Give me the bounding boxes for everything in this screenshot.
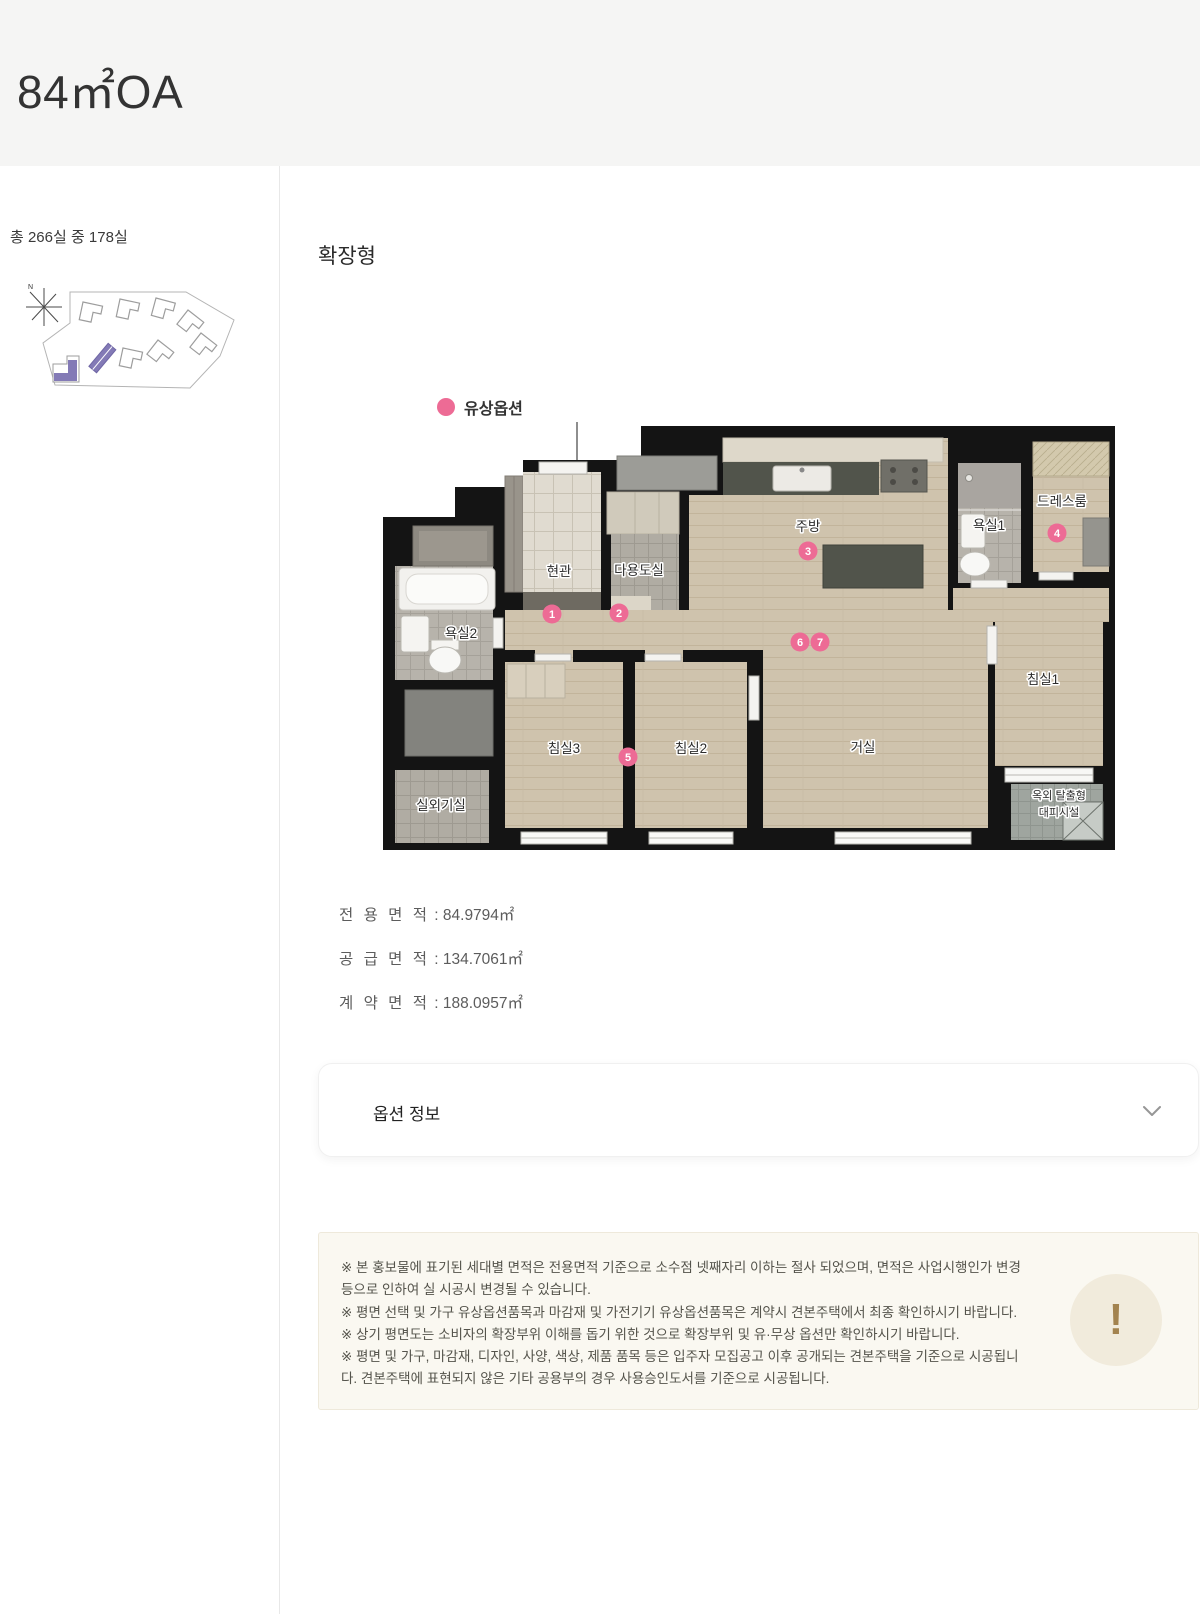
paid-option-legend: 유상옵션 xyxy=(437,395,523,419)
option-marker-1: 1 xyxy=(549,609,555,621)
room-label-outdoor-unit: 실외기실 xyxy=(416,798,466,813)
room-label-escape-line2: 대피시설 xyxy=(1039,806,1079,819)
option-info-accordion[interactable]: 옵션 정보 xyxy=(318,1063,1199,1157)
disclaimer-text: ※ 본 홍보물에 표기된 세대별 면적은 전용면적 기준으로 소수점 넷째자리 … xyxy=(341,1257,1031,1391)
alert-badge: ! xyxy=(1070,1274,1162,1366)
entry-area xyxy=(505,462,601,610)
bedroom1-area xyxy=(987,622,1103,782)
contract-area-label: 계 약 면 적 xyxy=(339,995,430,1012)
site-plan-map: N xyxy=(8,276,248,404)
availability-text: 총 266실 중 178실 xyxy=(10,226,128,247)
room-label-dressroom: 드레스룸 xyxy=(1037,494,1087,509)
disclaimer-item: ※ 평면 선택 및 가구 유상옵션품목과 마감재 및 가전기기 유상옵션품목은 … xyxy=(341,1302,1031,1324)
room-label-escape-line1: 옥외 탈출형 xyxy=(1032,789,1086,802)
unit-detail-page: 84㎡OA 총 266실 중 178실 N xyxy=(0,0,1200,1614)
unit-type-title: 84㎡OA xyxy=(17,64,183,120)
room-label-utility: 다용도실 xyxy=(614,563,664,578)
supply-area-value: : 134.7061㎡ xyxy=(434,951,523,968)
disclaimer-item: ※ 본 홍보물에 표기된 세대별 면적은 전용면적 기준으로 소수점 넷째자리 … xyxy=(341,1257,1031,1302)
option-marker-2: 2 xyxy=(616,608,622,620)
page-header: 84㎡OA xyxy=(0,0,1200,166)
room-label-bathroom2: 욕실2 xyxy=(445,626,477,641)
area-spec-list: 전 용 면 적 : 84.9794㎡ 공 급 면 적 : 134.7061㎡ 계… xyxy=(339,903,523,1035)
dressroom-area xyxy=(1033,442,1109,580)
room-label-kitchen: 주방 xyxy=(796,519,821,534)
disclaimer-box: ※ 본 홍보물에 표기된 세대별 면적은 전용면적 기준으로 소수점 넷째자리 … xyxy=(318,1232,1199,1410)
option-marker-3: 3 xyxy=(805,546,811,558)
storage-area xyxy=(405,690,493,756)
room-label-bedroom2: 침실2 xyxy=(675,741,707,756)
exclusive-area-row: 전 용 면 적 : 84.9794㎡ xyxy=(339,903,523,926)
room-label-entry: 현관 xyxy=(547,564,572,579)
option-info-label: 옵션 정보 xyxy=(373,1100,440,1125)
svg-text:N: N xyxy=(28,284,33,291)
exclamation-icon: ! xyxy=(1109,1295,1124,1345)
compass-icon: N xyxy=(26,284,62,326)
room-label-bedroom1: 침실1 xyxy=(1027,672,1059,687)
contract-area-value: : 188.0957㎡ xyxy=(434,995,523,1012)
room-label-living: 거실 xyxy=(851,740,876,755)
supply-area-label: 공 급 면 적 xyxy=(339,951,430,968)
exclusive-area-value: : 84.9794㎡ xyxy=(434,907,514,924)
supply-area-row: 공 급 면 적 : 134.7061㎡ xyxy=(339,947,523,970)
disclaimer-item: ※ 상기 평면도는 소비자의 확장부위 이해를 돕기 위한 것으로 확장부위 및… xyxy=(341,1324,1031,1346)
paid-option-dot-icon xyxy=(437,398,455,416)
option-marker-4: 4 xyxy=(1054,528,1061,540)
room-label-bedroom3: 침실3 xyxy=(548,741,580,756)
option-marker-6: 6 xyxy=(797,637,803,649)
paid-option-label: 유상옵션 xyxy=(464,395,523,419)
contract-area-row: 계 약 면 적 : 188.0957㎡ xyxy=(339,991,523,1014)
exclusive-area-label: 전 용 면 적 xyxy=(339,907,430,924)
room-label-bathroom1: 욕실1 xyxy=(973,518,1005,533)
plan-type-heading: 확장형 xyxy=(318,243,376,271)
disclaimer-item: ※ 평면 및 가구, 마감재, 디자인, 사양, 색상, 제품 품목 등은 입주… xyxy=(341,1346,1031,1391)
floor-plan-image: 현관 다용도실 주방 욕실1 드레스룸 욕실2 침실3 침실2 거실 침실1 실… xyxy=(383,418,1115,850)
option-marker-7: 7 xyxy=(817,637,823,649)
chevron-down-icon[interactable] xyxy=(1142,1105,1162,1117)
column-divider xyxy=(279,166,280,1614)
option-marker-5: 5 xyxy=(625,752,631,764)
